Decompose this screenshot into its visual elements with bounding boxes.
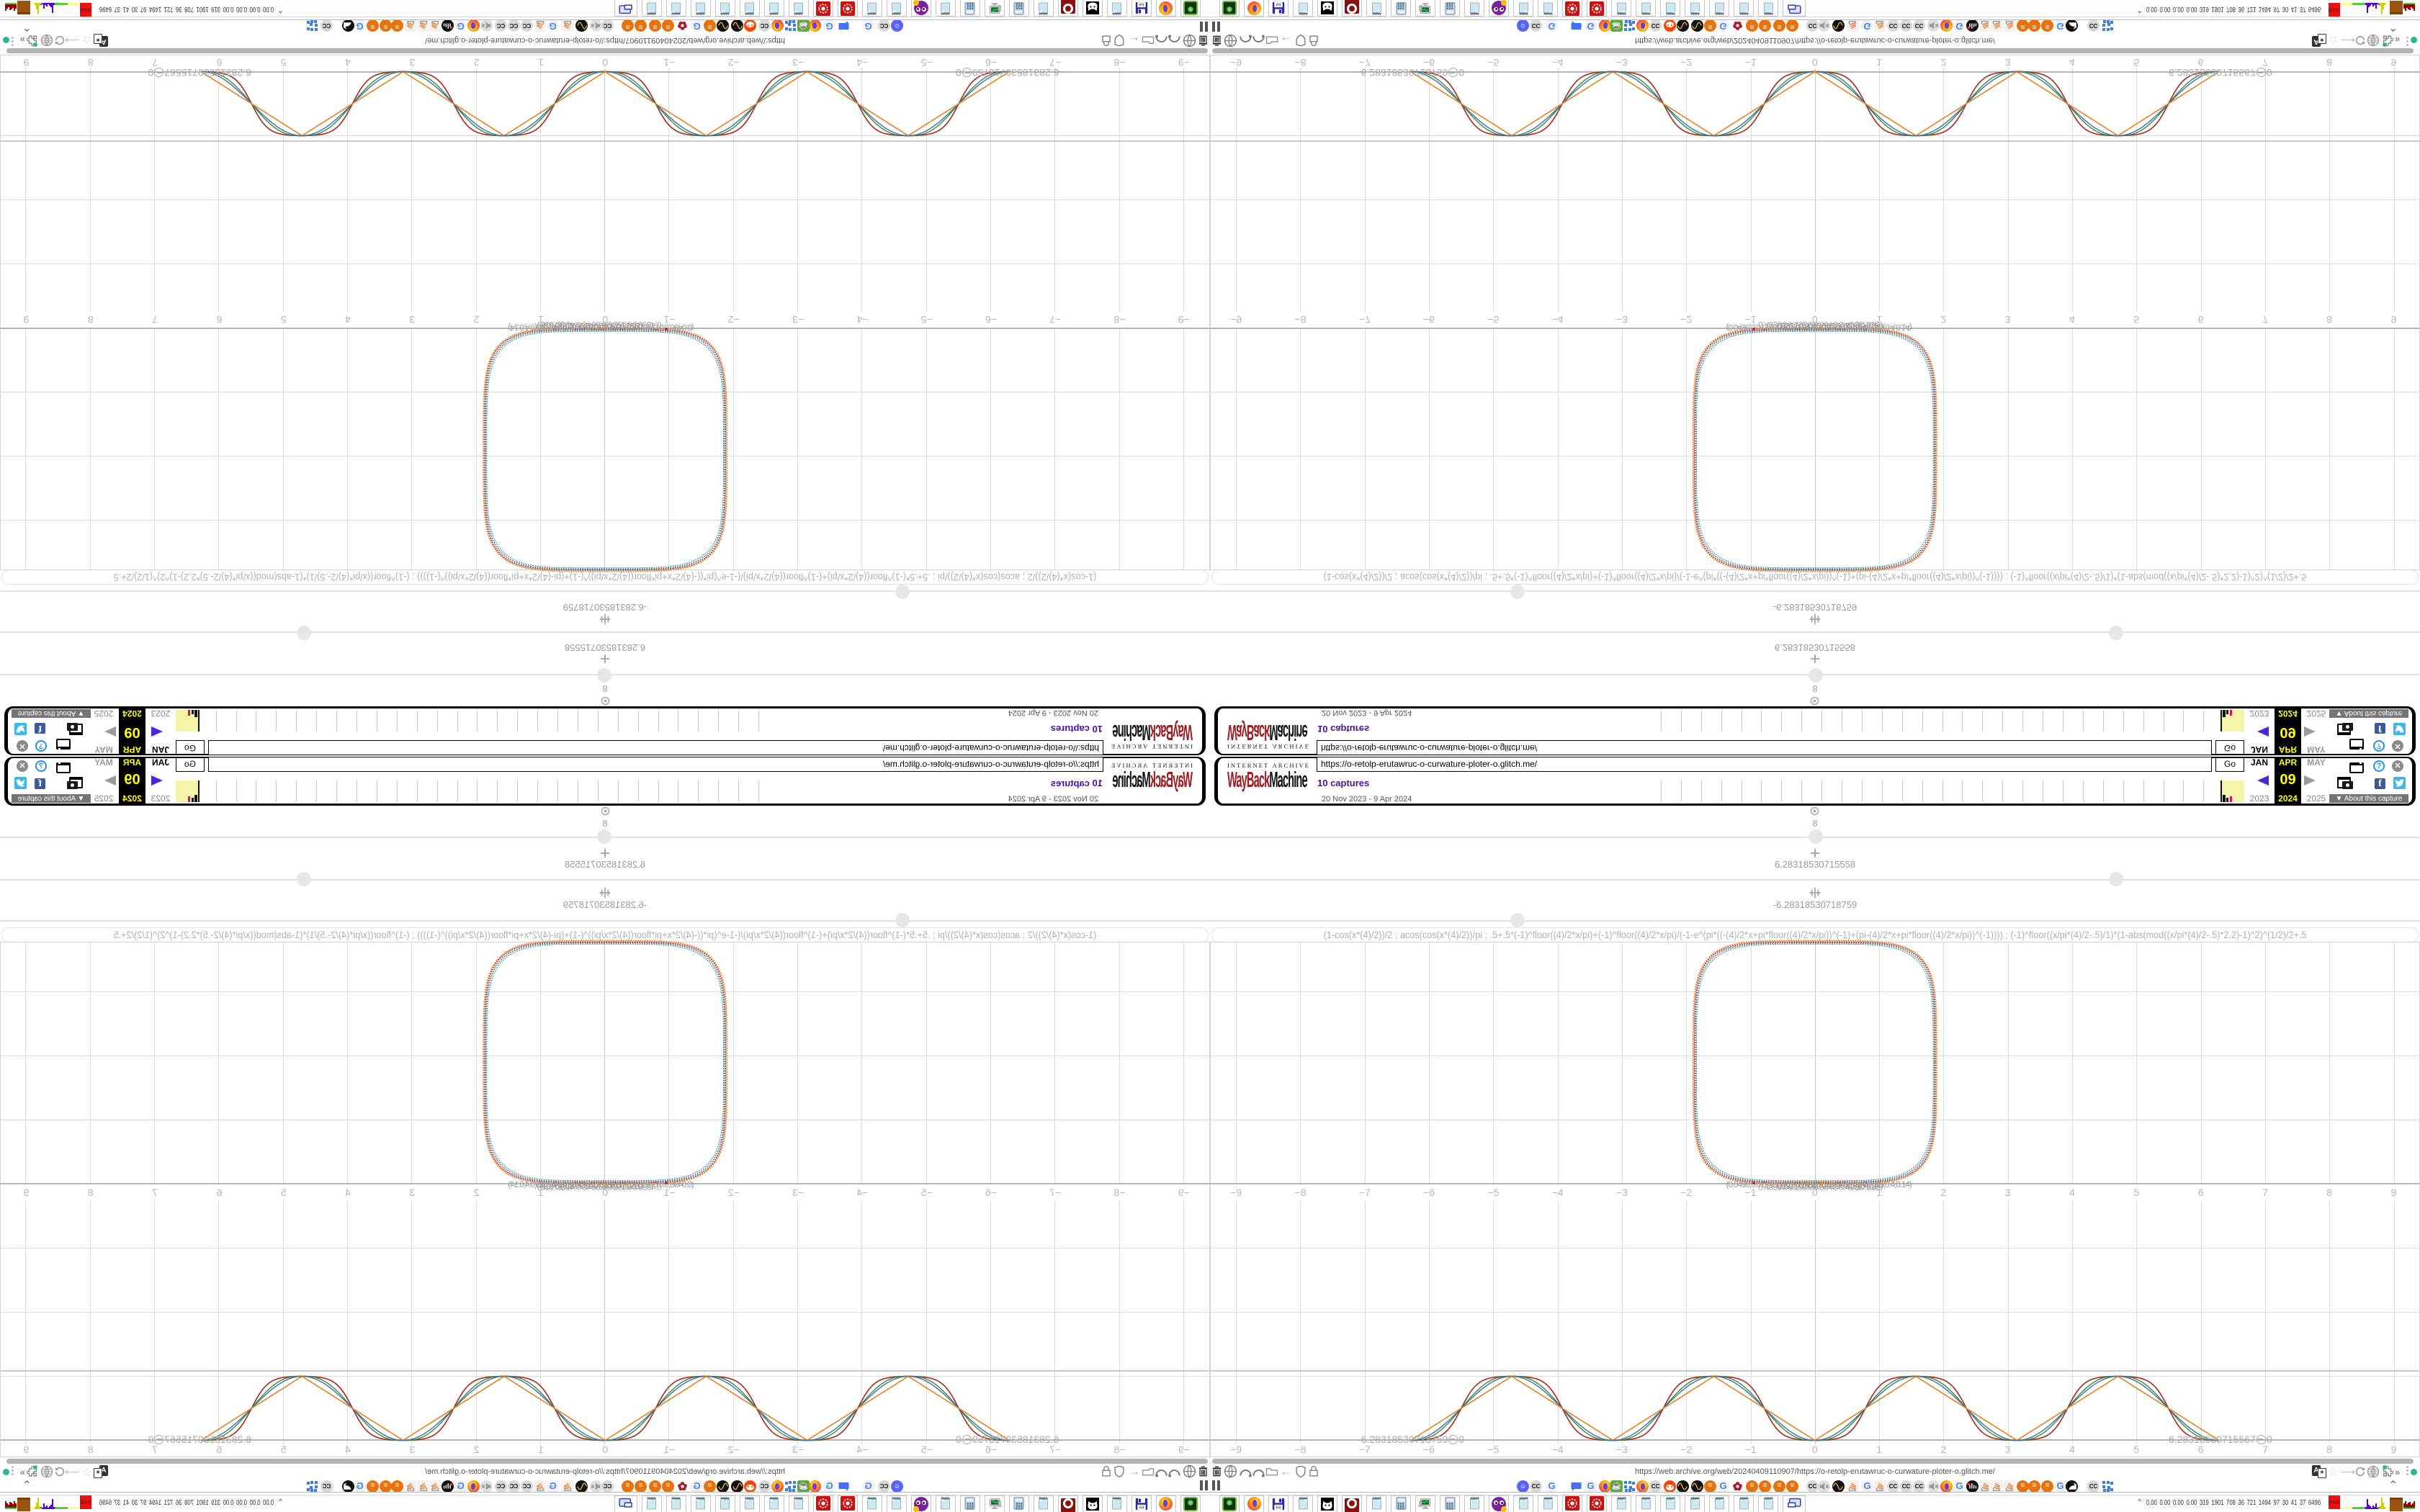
svg-text:64: 64	[1276, 1, 1281, 6]
svg-text:64: 64	[1139, 1, 1144, 6]
svg-text:64: 64	[1276, 1506, 1281, 1511]
svg-text:64: 64	[1139, 1506, 1144, 1511]
